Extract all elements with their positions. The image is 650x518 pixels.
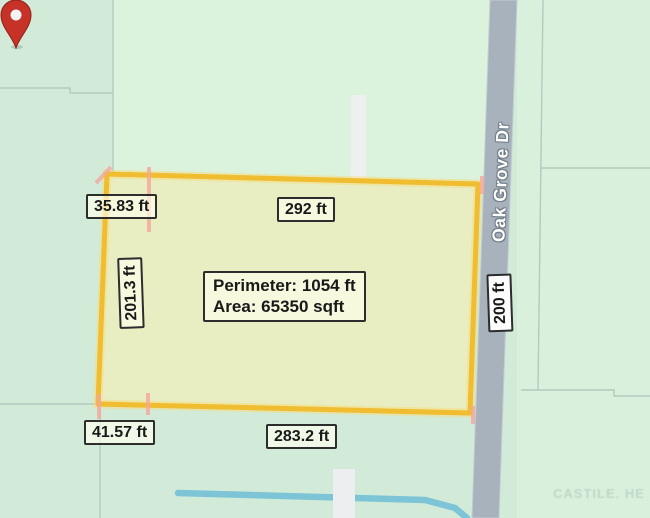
measurement-label-bottom-left: 41.57 ft: [84, 420, 155, 445]
driveway-bottom: [333, 469, 355, 518]
map-pin-icon[interactable]: [0, 0, 32, 50]
street-name-label: Oak Grove Dr: [488, 122, 513, 243]
driveway-top: [351, 95, 366, 187]
map-background-upper: [113, 0, 490, 185]
area-value: Area: 65350 sqft: [213, 296, 356, 317]
measurement-label-bottom: 283.2 ft: [266, 424, 337, 449]
measurement-label-left: 201.3 ft: [117, 257, 145, 329]
pin-body: [1, 0, 31, 48]
measurement-label-right: 200 ft: [486, 274, 513, 333]
pin-center-dot: [11, 10, 22, 21]
map-background-right: [517, 0, 650, 518]
measurement-label-top-left: 35.83 ft: [86, 194, 157, 219]
watermark: CASTILE. HE: [553, 486, 645, 501]
perimeter-value: Perimeter: 1054 ft: [213, 275, 356, 296]
measurement-summary: Perimeter: 1054 ft Area: 65350 sqft: [203, 271, 366, 322]
measurement-label-top: 292 ft: [277, 197, 335, 222]
map-canvas[interactable]: 35.83 ft 292 ft 201.3 ft Perimeter: 1054…: [0, 0, 650, 518]
